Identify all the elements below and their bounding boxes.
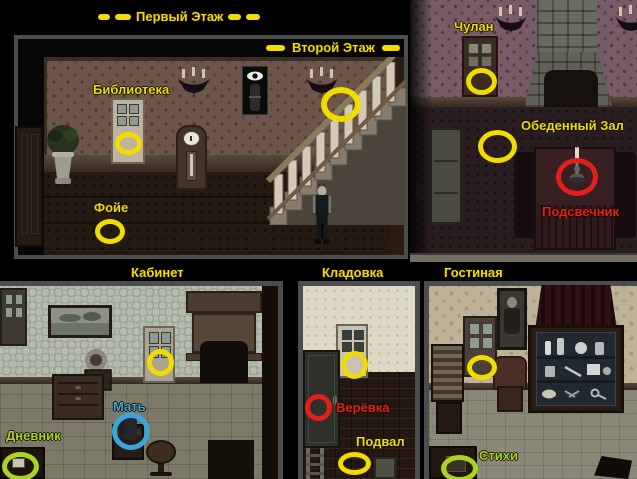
title-dash xyxy=(98,14,110,20)
stool xyxy=(436,402,462,434)
marker-library-door[interactable] xyxy=(115,132,142,155)
title-dash xyxy=(382,45,400,51)
landscape-painting xyxy=(48,305,112,338)
dresser xyxy=(52,374,104,420)
bookshelf xyxy=(431,344,464,402)
marker-storage-window[interactable] xyxy=(341,351,368,379)
study-right-shadow xyxy=(262,286,278,479)
marker-closet-door[interactable] xyxy=(466,68,497,95)
label-study: Кабинет xyxy=(131,266,184,279)
marker-poems[interactable] xyxy=(441,455,478,479)
label-candlestick: Подсвечник xyxy=(542,205,619,218)
title-dash xyxy=(246,14,260,20)
second-floor-title-text: Второй Этаж xyxy=(292,41,375,54)
storage-panel-border xyxy=(298,281,420,286)
marker-living-window[interactable] xyxy=(467,355,497,380)
marker-study-window[interactable] xyxy=(147,349,174,376)
marker-rope[interactable] xyxy=(305,394,332,421)
armchair xyxy=(493,356,527,412)
dining-bottom-ledge xyxy=(410,253,637,262)
marker-candlestick[interactable] xyxy=(556,158,598,196)
stone-chimney xyxy=(537,0,597,60)
title-dash xyxy=(266,45,285,51)
first-floor-title-text: Первый Этаж xyxy=(136,10,223,23)
label-library: Библиотека xyxy=(93,83,169,96)
fireplace-opening xyxy=(544,70,598,107)
label-poems: Стихи xyxy=(479,449,518,462)
marker-stairs-second-floor[interactable] xyxy=(321,87,361,122)
storage-panel-border xyxy=(415,281,420,479)
grandfather-clock xyxy=(176,125,207,190)
label-diary: Дневник xyxy=(6,429,61,442)
study-corner-window xyxy=(0,288,27,346)
wall-sconce-icon xyxy=(612,4,637,34)
display-cabinet xyxy=(528,325,624,413)
marker-dining-hall[interactable] xyxy=(478,130,517,163)
portrait-painting xyxy=(497,288,527,350)
second-floor-title: Второй Этаж xyxy=(266,41,400,54)
marker-basement[interactable] xyxy=(338,452,371,475)
label-rope: Верёвка xyxy=(336,401,390,414)
foyer-step-line xyxy=(44,196,284,198)
wall-sconce-icon xyxy=(492,4,530,34)
hall-door xyxy=(15,126,43,247)
label-closet: Чулан xyxy=(454,20,494,33)
title-dash xyxy=(115,14,131,20)
study-panel-border xyxy=(278,281,283,479)
canopy-drape xyxy=(535,285,617,330)
dining-left-shadow xyxy=(410,0,432,253)
marker-mother[interactable] xyxy=(112,413,150,450)
marker-foyer[interactable] xyxy=(95,219,125,244)
label-living-room: Гостиная xyxy=(444,266,503,279)
ladder xyxy=(303,448,327,479)
label-dining-hall: Обеденный Зал xyxy=(521,119,624,132)
sideboard-cabinet xyxy=(430,128,462,224)
first-floor-title: Первый Этаж xyxy=(98,10,260,23)
wall-sconce-icon xyxy=(175,66,213,96)
study-fireplace xyxy=(186,291,262,383)
hearth-shadow xyxy=(208,440,254,479)
label-basement: Подвал xyxy=(356,435,405,448)
label-foyer: Фойе xyxy=(94,201,128,214)
round-side-table xyxy=(146,440,176,478)
staircase xyxy=(260,57,406,225)
label-storage: Кладовка xyxy=(322,266,383,279)
label-mother: Мать xyxy=(113,400,146,413)
marker-diary[interactable] xyxy=(2,452,39,479)
step-stool xyxy=(374,457,396,479)
potted-plant xyxy=(46,122,80,190)
annotated-map: Первый Этаж Второй Этаж Библиотека Фойе … xyxy=(0,0,637,479)
butler-figure xyxy=(311,184,333,248)
study-panel-border xyxy=(0,281,283,286)
title-dash xyxy=(228,14,241,20)
